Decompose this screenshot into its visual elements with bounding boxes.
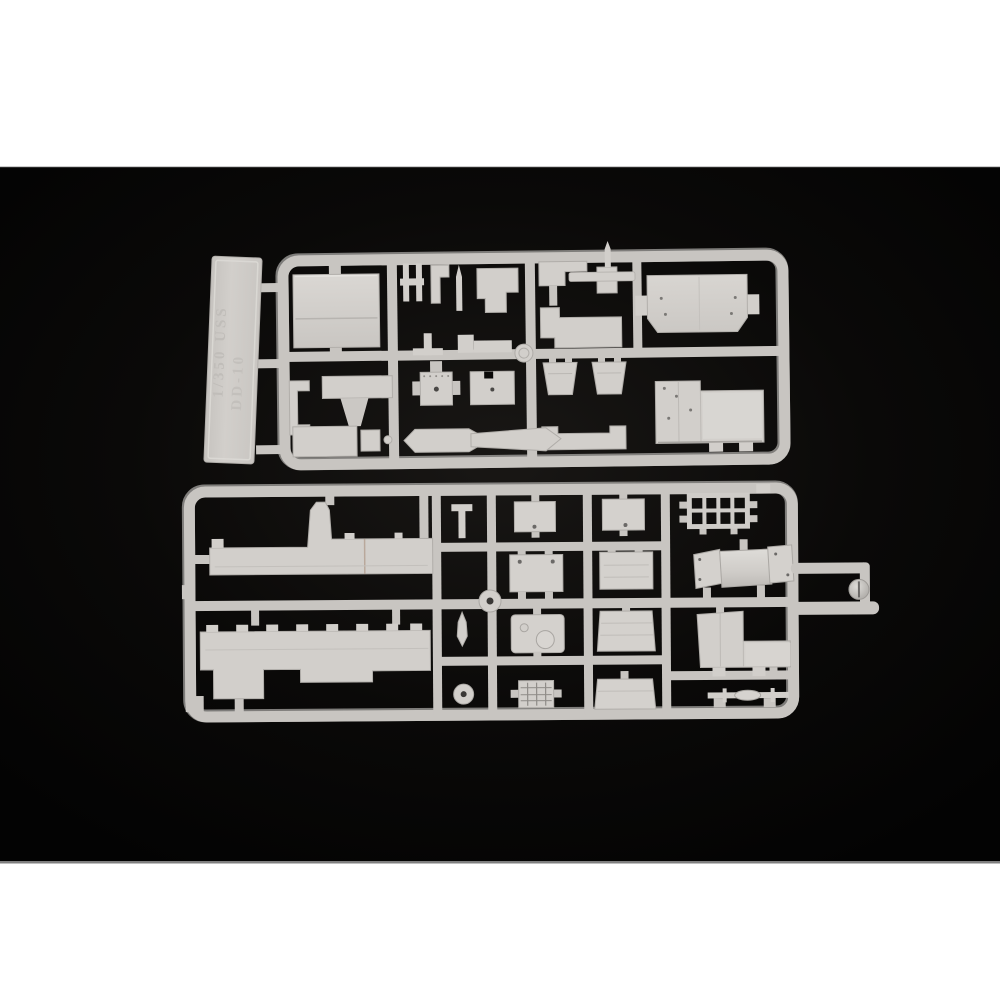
part-plate-row2-col1 — [510, 547, 563, 599]
part-wheel-2 — [454, 684, 474, 704]
superstructure-upper-stub — [195, 555, 211, 564]
deck-plate-body — [293, 274, 380, 348]
strip-connector-tab — [256, 445, 282, 454]
wheel-2-hole — [461, 691, 467, 697]
curved-shield-center-panel — [720, 549, 772, 587]
grate-tab — [511, 690, 519, 698]
deckhouse-foot — [739, 442, 753, 451]
bottom-sprue-rail-step — [182, 585, 194, 599]
photo-bottom-divider — [0, 861, 1000, 864]
part-notch-plate — [470, 371, 514, 405]
bottom-sprue-runner-h1 — [437, 546, 666, 548]
davit-crossbar — [400, 278, 424, 285]
curved-shield-left-panel — [694, 549, 722, 588]
trap-plate-tab — [620, 671, 628, 679]
top-sprue-runner-h1 — [284, 351, 784, 357]
photo-top-divider — [0, 166, 1000, 168]
hull-plate-body — [647, 274, 748, 332]
curved-shield-right-panel — [768, 545, 794, 583]
label-strip: 1/350 USSDD-10 — [204, 256, 262, 464]
deckhouse-l-shade — [745, 643, 790, 666]
low-bracket-arm — [474, 340, 512, 352]
deck-plate-tab-top — [329, 264, 341, 275]
hull-plate-clip-left — [635, 296, 648, 316]
low-bracket-foot — [458, 335, 474, 353]
rivet-plate-tab — [452, 381, 460, 395]
rounded-plate-small-circle — [520, 624, 528, 632]
superstructure-window — [386, 624, 398, 631]
part-lattice-rack — [679, 487, 757, 535]
superstructure-lower-stub — [392, 609, 400, 625]
deckhouse-l-foot — [752, 667, 765, 676]
deck-plate-seam — [295, 318, 377, 319]
curved-shield-dot — [786, 573, 789, 576]
ejector-disc — [515, 344, 533, 362]
part-trapezoid-plate-1 — [597, 604, 655, 651]
shaft-fin — [723, 688, 727, 702]
plate-dot — [518, 560, 522, 564]
bottom-sprue-corner-block — [186, 696, 204, 712]
part-l-flat-stem — [549, 286, 557, 306]
square-plate-body — [602, 499, 644, 530]
plate-body — [600, 552, 653, 589]
grate-tab — [554, 690, 562, 698]
curved-shield-dot — [698, 558, 701, 561]
notch-plate-cutout — [484, 371, 493, 378]
product-photo-stage: 1/350 USSDD-10 — [0, 0, 1000, 1000]
superstructure-lower-stub — [251, 610, 259, 626]
superstructure-window — [266, 624, 278, 631]
curved-shield-dot — [698, 578, 701, 581]
hammer-head — [451, 504, 472, 511]
rounded-plate-tab — [533, 652, 541, 661]
plate-dot — [551, 560, 555, 564]
superstructure-window — [410, 623, 422, 630]
curved-shield-stub — [740, 539, 748, 550]
rivet-plate-tab — [430, 361, 442, 372]
square-plate-dot — [532, 525, 536, 529]
scene-root: 1/350 USSDD-10 — [0, 166, 1000, 864]
part-ships-boat-1 — [404, 429, 478, 453]
plate-tab — [518, 592, 526, 600]
hammer-stem — [458, 508, 465, 538]
curved-shield-dot — [774, 552, 777, 555]
tbar-base — [413, 348, 443, 355]
part-low-rect — [293, 426, 357, 457]
rounded-plate-big-circle — [536, 631, 554, 649]
part-deckhouse-large — [655, 380, 764, 452]
superstructure-window — [356, 624, 368, 631]
superstructure-window — [236, 625, 248, 632]
superstructure-upper-bump — [395, 533, 403, 539]
hull-plate-seam — [699, 277, 700, 330]
part-wheel-1 — [479, 590, 501, 612]
superstructure-window — [206, 625, 218, 632]
loop-bottom-bar — [791, 601, 879, 615]
plate-body — [510, 554, 563, 591]
part-round-pin — [384, 436, 392, 444]
part-rounded-plate-circles — [511, 607, 564, 660]
hull-plate-clip-right — [746, 294, 759, 314]
curved-shield-stub — [703, 587, 711, 602]
trap-plate-body — [597, 611, 655, 651]
part-hull-bottom-plate — [635, 274, 760, 333]
shaft-fin — [771, 688, 775, 702]
deckhouse-l-foot — [712, 667, 725, 676]
deckhouse-l-stub — [769, 667, 777, 676]
superstructure-upper-bump — [345, 533, 355, 539]
label-strip-text-line2: DD-10 — [229, 354, 247, 411]
strip-connector-tab — [255, 359, 281, 368]
part-grate-hatch — [511, 681, 562, 708]
deckhouse-seam — [700, 391, 701, 443]
wheel-1-hole — [486, 597, 493, 604]
part-thin-bar — [569, 272, 635, 282]
superstructure-upper-tab — [212, 539, 224, 548]
box-body — [322, 376, 392, 399]
deckhouse-roof-panel — [702, 392, 762, 439]
deckhouse-foot — [709, 443, 723, 452]
rivet-plate-tab — [412, 381, 420, 395]
shield-body — [592, 362, 626, 394]
deck-plate-tab-bottom — [330, 346, 342, 358]
trap-plate-body — [595, 679, 656, 709]
shaft-fairing — [735, 690, 761, 700]
deck-plate-highlight — [295, 275, 377, 276]
part-low-square — [361, 430, 380, 451]
plate-tab — [545, 592, 553, 600]
superstructure-lower-stub — [235, 699, 244, 713]
top-sprue-runner-v1 — [392, 260, 394, 464]
sprue-photo: 1/350 USSDD-10 — [0, 0, 1000, 1000]
shield-body — [543, 362, 577, 394]
superstructure-window — [326, 624, 338, 631]
square-plate-dot — [623, 523, 627, 527]
part-corner-tab — [756, 484, 770, 493]
loop-top-bar — [791, 562, 869, 574]
superstructure-upper-stub — [419, 495, 428, 538]
rounded-plate-body — [511, 614, 564, 652]
curved-shield-stub — [757, 585, 765, 602]
superstructure-window — [296, 624, 308, 631]
bottom-sprue-runner-h3 — [437, 660, 666, 662]
part-main-deck-plate — [293, 264, 380, 359]
